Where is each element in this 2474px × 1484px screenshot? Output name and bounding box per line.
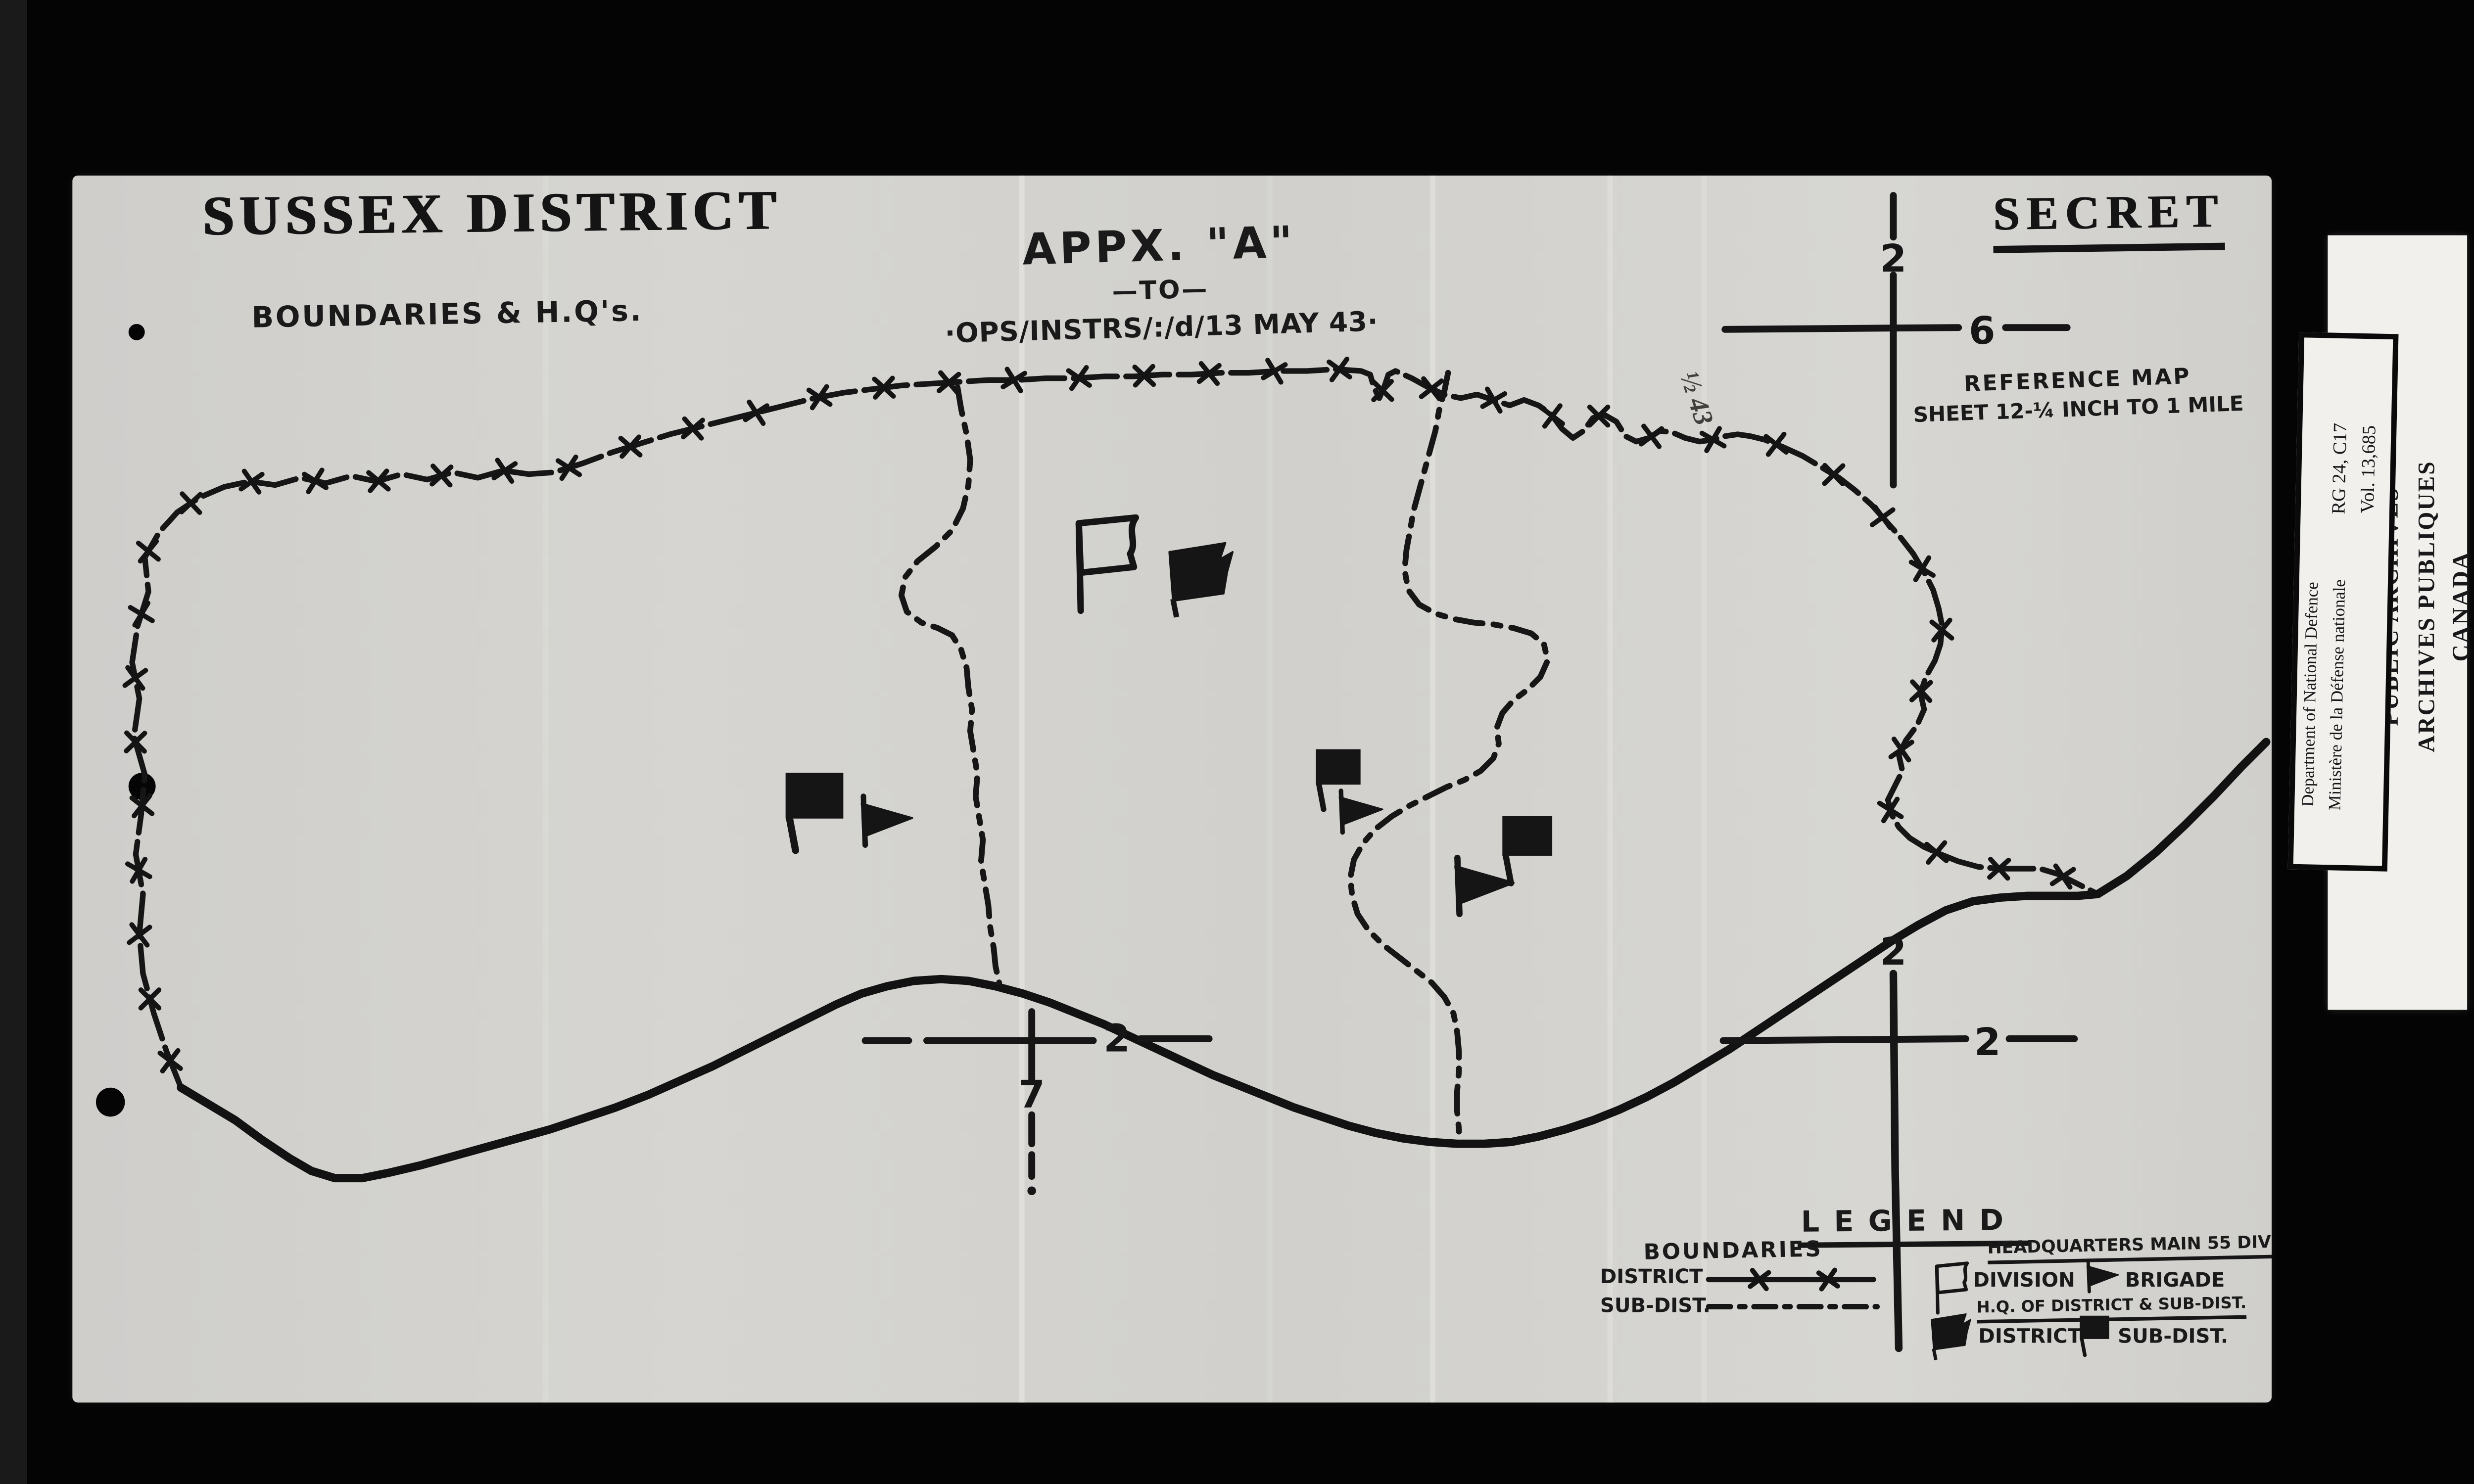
classification-stamp: SECRET xyxy=(1993,185,2225,253)
legend-subdist-label: SUB-DIST. xyxy=(1600,1294,1711,1318)
punch-hole xyxy=(129,324,145,340)
scanned-map-page: SUSSEX DISTRICT BOUNDARIES & H.Q's. SECR… xyxy=(0,0,2474,1484)
dnd-reference-text: RG 24, C17 Vol. 13,685 xyxy=(2326,422,2384,514)
dnd-rg-number: RG 24, C17 xyxy=(2326,422,2356,514)
public-archives-line2: ARCHIVES PUBLIQUES xyxy=(2407,460,2442,752)
paper-fold-line xyxy=(1019,176,1024,1402)
dnd-archive-card: Department of National Defence Ministère… xyxy=(2288,332,2399,872)
page-subtitle: BOUNDARIES & H.Q's. xyxy=(251,293,643,334)
legend-division-label: DIVISION xyxy=(1973,1269,2075,1293)
dnd-volume-number: Vol. 13,685 xyxy=(2354,422,2384,514)
dnd-dept-en: Department of National Defence xyxy=(2296,578,2328,809)
appendix-to: —TO— xyxy=(932,271,1389,312)
legend-district-label: DISTRICT xyxy=(1600,1265,1703,1289)
dnd-department-text: Department of National Defence Ministère… xyxy=(2296,578,2354,810)
legend-boundaries-heading: BOUNDARIES xyxy=(1643,1236,1823,1265)
page-title: SUSSEX DISTRICT xyxy=(202,178,782,249)
paper-fold-line xyxy=(1430,176,1434,1402)
legend-district-flag-label: DISTRICT xyxy=(1978,1325,2081,1348)
paper-fold-line xyxy=(1607,176,1612,1402)
legend-brigade-label: BRIGADE xyxy=(2125,1269,2225,1293)
scanner-edge-strip xyxy=(0,0,27,1484)
paper-fold-line xyxy=(543,176,547,1402)
paper-fold-line xyxy=(1267,176,1272,1402)
public-archives-line3: CANADA xyxy=(2442,460,2474,752)
paper-fold-line xyxy=(1702,176,1706,1402)
scan-background: { "header": { "title": "SUSSEX DISTRICT"… xyxy=(0,0,2474,1484)
legend-subdist-flag-label: SUB-DIST. xyxy=(2118,1325,2228,1348)
legend-hq-subheading: H.Q. OF DISTRICT & SUB-DIST. xyxy=(1976,1295,2246,1323)
punch-hole xyxy=(129,773,156,800)
punch-hole xyxy=(96,1088,125,1117)
appendix-block: APPX. "A" —TO— ·OPS/INSTRS/:/d/13 MAY 43… xyxy=(931,215,1390,350)
